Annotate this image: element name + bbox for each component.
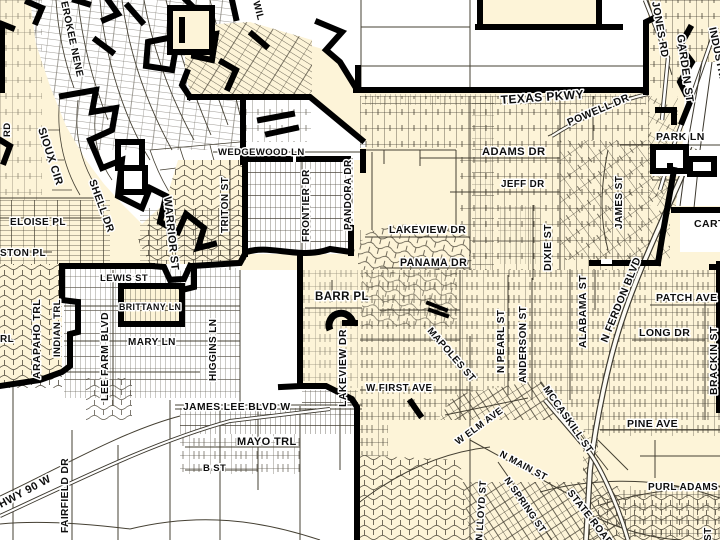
svg-text:PARK LN: PARK LN [656,131,705,143]
svg-text:BRACKIN ST: BRACKIN ST [708,326,720,395]
svg-text:PATCH AVE: PATCH AVE [656,292,718,304]
svg-text:ALABAMA ST: ALABAMA ST [577,275,589,348]
svg-text:ANDERSON ST: ANDERSON ST [518,306,529,383]
svg-text:STON PL: STON PL [0,248,46,259]
svg-text:BARR PL: BARR PL [315,291,369,303]
svg-text:FRONTIER DR: FRONTIER DR [301,169,312,242]
svg-text:MAYO TRL: MAYO TRL [237,436,297,448]
svg-text:INDIAN TRL: INDIAN TRL [52,299,63,357]
svg-text:ST: ST [703,527,714,540]
svg-text:DIXIE ST: DIXIE ST [542,224,554,271]
svg-text:HIGGINS LN: HIGGINS LN [208,319,219,381]
svg-text:WEDGEWOOD LN: WEDGEWOOD LN [218,147,305,158]
svg-text:B ST: B ST [203,463,226,474]
svg-text:JAMES LEE BLVD W: JAMES LEE BLVD W [183,402,290,413]
svg-text:ADAMS DR: ADAMS DR [482,146,546,158]
svg-text:TRITON ST: TRITON ST [220,177,231,233]
svg-text:LEWIS ST: LEWIS ST [100,273,148,284]
svg-text:PINE AVE: PINE AVE [627,418,678,430]
svg-text:LEE FARM BLVD: LEE FARM BLVD [99,312,111,401]
svg-text:ELOISE PL: ELOISE PL [10,217,66,228]
svg-text:ARAPAHO TRL: ARAPAHO TRL [31,299,43,379]
svg-text:FAIRFIELD DR: FAIRFIELD DR [60,458,71,533]
svg-text:RD: RD [2,122,13,137]
svg-text:MARY LN: MARY LN [128,337,176,348]
svg-text:PURL ADAMS: PURL ADAMS [648,482,718,493]
svg-text:LONG DR: LONG DR [639,327,690,339]
svg-text:LAKEVIEW DR: LAKEVIEW DR [389,225,466,236]
svg-text:CART: CART [694,218,720,230]
svg-text:W FIRST AVE: W FIRST AVE [366,383,433,394]
svg-text:LAKEVIEW DR: LAKEVIEW DR [337,329,349,407]
svg-text:JEFF DR: JEFF DR [501,179,545,190]
svg-text:PANAMA DR: PANAMA DR [400,257,467,269]
svg-text:PANDORA DR: PANDORA DR [343,159,354,230]
svg-text:RL: RL [0,334,14,345]
svg-text:N PEARL ST: N PEARL ST [496,310,507,373]
svg-text:JAMES ST: JAMES ST [614,176,625,229]
svg-text:BRITTANY LN: BRITTANY LN [119,302,181,312]
